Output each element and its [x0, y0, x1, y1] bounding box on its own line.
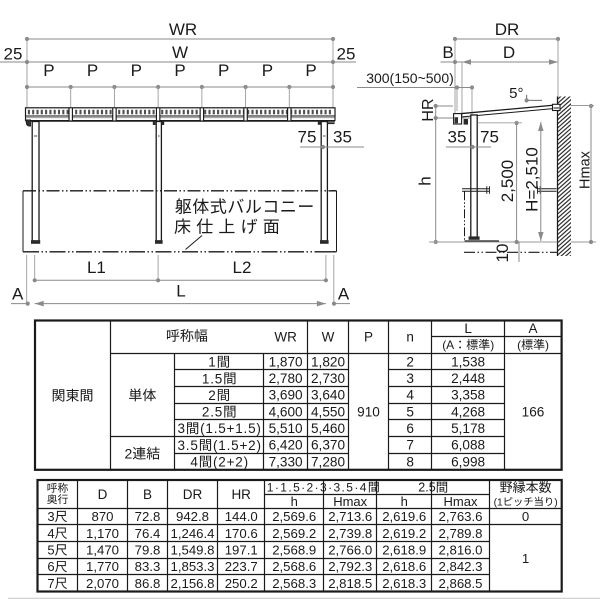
svg-text:4: 4: [406, 388, 414, 403]
svg-text:35: 35: [333, 127, 352, 146]
svg-text:2,713.6: 2,713.6: [328, 509, 372, 524]
svg-text:2,568.3: 2,568.3: [272, 576, 316, 591]
svg-text:2,568.9: 2,568.9: [272, 543, 316, 558]
svg-text:3.5: 3.5: [178, 438, 199, 453]
svg-text:L2: L2: [233, 258, 252, 277]
svg-text:25: 25: [4, 44, 23, 63]
svg-text:2,619.6: 2,619.6: [382, 509, 426, 524]
svg-text:76.4: 76.4: [135, 526, 161, 541]
svg-text:2.5: 2.5: [202, 405, 223, 420]
svg-text:Hmax: Hmax: [578, 150, 594, 189]
svg-text:79.8: 79.8: [135, 543, 161, 558]
svg-text:2,568.6: 2,568.6: [272, 559, 316, 574]
svg-text:1,246.4: 1,246.4: [171, 526, 215, 541]
svg-text:2,789.8: 2,789.8: [439, 526, 483, 541]
svg-text:7: 7: [47, 576, 54, 591]
svg-text:W: W: [172, 43, 188, 62]
svg-text:HR: HR: [231, 487, 251, 502]
svg-text:1·1.5·2·3·3.5·4: 1·1.5·2·3·3.5·4: [267, 481, 368, 495]
svg-text:2,868.5: 2,868.5: [439, 576, 483, 591]
svg-text:6: 6: [406, 421, 414, 436]
svg-text:25: 25: [337, 44, 356, 63]
svg-text:P: P: [87, 61, 98, 80]
svg-text:942.8: 942.8: [176, 509, 209, 524]
svg-text:2,739.8: 2,739.8: [328, 526, 372, 541]
svg-text:2,842.3: 2,842.3: [439, 559, 483, 574]
svg-text:WR: WR: [274, 330, 297, 345]
svg-text:1,853.3: 1,853.3: [171, 559, 215, 574]
svg-text:6,370: 6,370: [311, 438, 345, 453]
svg-text:n: n: [406, 330, 414, 345]
svg-text:3,640: 3,640: [311, 388, 345, 403]
svg-text:83.3: 83.3: [135, 559, 161, 574]
svg-text:A: A: [12, 285, 24, 304]
svg-text:(2+2): (2+2): [213, 455, 249, 470]
svg-text:1.5: 1.5: [202, 371, 223, 386]
svg-text:1: 1: [522, 551, 529, 566]
svg-text:2,569.2: 2,569.2: [272, 526, 316, 541]
svg-text:5: 5: [47, 543, 54, 558]
svg-text:5,510: 5,510: [269, 421, 303, 436]
svg-text:3: 3: [178, 421, 186, 436]
svg-text:): ): [545, 338, 549, 352]
svg-text:6,088: 6,088: [451, 438, 485, 453]
svg-text:300(150~500): 300(150~500): [366, 70, 454, 86]
svg-text:2: 2: [208, 388, 216, 403]
svg-text:3,358: 3,358: [451, 388, 485, 403]
svg-text:5°: 5°: [509, 85, 523, 102]
svg-text:4: 4: [47, 526, 54, 541]
svg-text:2,618.6: 2,618.6: [382, 559, 426, 574]
svg-text:(1: (1: [494, 497, 503, 508]
svg-text:5,178: 5,178: [451, 421, 485, 436]
svg-text:h: h: [416, 176, 435, 185]
svg-text:4,550: 4,550: [311, 404, 345, 419]
svg-text:B: B: [143, 487, 152, 502]
svg-text:2,618.9: 2,618.9: [382, 543, 426, 558]
svg-text:2,619.2: 2,619.2: [382, 526, 426, 541]
svg-text:8: 8: [406, 454, 414, 469]
svg-text:6,998: 6,998: [451, 454, 485, 469]
svg-text:5: 5: [406, 404, 414, 419]
svg-text:P: P: [218, 61, 229, 80]
svg-text:DR: DR: [183, 487, 203, 502]
svg-text:2.5: 2.5: [418, 481, 435, 495]
svg-text:h: h: [291, 494, 298, 509]
svg-text:P: P: [131, 61, 142, 80]
svg-text:P: P: [364, 330, 373, 345]
svg-text:2,070: 2,070: [86, 576, 119, 591]
svg-text:HR: HR: [420, 98, 437, 121]
svg-text:35: 35: [448, 127, 467, 146]
svg-text:H=2,510: H=2,510: [523, 147, 542, 212]
svg-text:1,549.8: 1,549.8: [171, 543, 215, 558]
svg-text:2,618.3: 2,618.3: [382, 576, 426, 591]
svg-text:223.7: 223.7: [225, 559, 258, 574]
svg-text:P: P: [43, 61, 54, 80]
svg-text:2,500: 2,500: [498, 160, 517, 203]
svg-text:WR: WR: [169, 20, 197, 39]
svg-text:L: L: [176, 281, 185, 300]
svg-text:2: 2: [125, 446, 133, 462]
svg-text:2,569.6: 2,569.6: [272, 509, 316, 524]
svg-text:1: 1: [208, 355, 216, 370]
svg-text:86.8: 86.8: [135, 576, 161, 591]
svg-text:L: L: [464, 321, 472, 336]
svg-text:1,470: 1,470: [86, 543, 119, 558]
svg-text:B: B: [442, 43, 453, 62]
svg-text:3: 3: [406, 371, 414, 386]
svg-text:h: h: [401, 494, 408, 509]
svg-text:197.1: 197.1: [225, 543, 258, 558]
svg-text:2,780: 2,780: [269, 371, 303, 386]
svg-text:7,280: 7,280: [311, 454, 345, 469]
svg-text:144.0: 144.0: [225, 509, 258, 524]
svg-text:72.8: 72.8: [135, 509, 161, 524]
svg-text:): ): [490, 338, 494, 352]
svg-text:170.6: 170.6: [225, 526, 258, 541]
svg-text:(: (: [517, 338, 521, 352]
svg-text:2: 2: [406, 354, 414, 369]
svg-text:P: P: [174, 61, 185, 80]
svg-text:3: 3: [47, 509, 54, 524]
svg-text:0: 0: [522, 509, 529, 524]
svg-text:A: A: [338, 285, 350, 304]
svg-text:250.2: 250.2: [225, 576, 258, 591]
svg-text:166: 166: [522, 404, 545, 419]
svg-text:6: 6: [47, 559, 54, 574]
svg-text:(A: (A: [442, 338, 454, 352]
svg-text:Hmax: Hmax: [444, 494, 478, 509]
svg-text:4,268: 4,268: [451, 404, 485, 419]
svg-text:2,156.8: 2,156.8: [171, 576, 215, 591]
svg-text:4,600: 4,600: [269, 404, 303, 419]
svg-text:L1: L1: [87, 258, 106, 277]
svg-text:2,792.3: 2,792.3: [328, 559, 372, 574]
svg-text:7: 7: [406, 438, 414, 453]
svg-text:D: D: [98, 487, 108, 502]
svg-text:D: D: [503, 43, 515, 62]
svg-text:DR: DR: [495, 20, 520, 39]
svg-text:2,763.6: 2,763.6: [439, 509, 483, 524]
svg-text:2,816.0: 2,816.0: [439, 543, 483, 558]
svg-text:2,730: 2,730: [311, 371, 345, 386]
svg-text:1,870: 1,870: [269, 354, 303, 369]
svg-text:2,818.5: 2,818.5: [328, 576, 372, 591]
svg-text:P: P: [305, 61, 316, 80]
svg-text:(1.5+2): (1.5+2): [213, 438, 262, 453]
svg-text:A: A: [528, 321, 537, 336]
svg-text:Hmax: Hmax: [333, 494, 367, 509]
svg-text:3,690: 3,690: [269, 388, 303, 403]
svg-text:75: 75: [298, 127, 317, 146]
svg-text:6,420: 6,420: [269, 438, 303, 453]
svg-text:910: 910: [357, 404, 380, 419]
svg-text:4: 4: [190, 455, 198, 470]
svg-text:1,820: 1,820: [311, 354, 345, 369]
svg-text:10: 10: [493, 244, 512, 263]
svg-text:P: P: [262, 61, 273, 80]
svg-text:2,448: 2,448: [451, 371, 485, 386]
svg-text:2,766.0: 2,766.0: [328, 543, 372, 558]
svg-text:1,770: 1,770: [86, 559, 119, 574]
svg-text:): ): [554, 497, 557, 508]
svg-text:1,170: 1,170: [86, 526, 119, 541]
svg-text:7,330: 7,330: [269, 454, 303, 469]
svg-text:(1.5+1.5): (1.5+1.5): [200, 421, 262, 436]
svg-text:5,460: 5,460: [311, 421, 345, 436]
svg-text:75: 75: [480, 127, 499, 146]
svg-text:W: W: [322, 330, 335, 345]
svg-text:1,538: 1,538: [451, 354, 485, 369]
svg-text:870: 870: [91, 509, 113, 524]
